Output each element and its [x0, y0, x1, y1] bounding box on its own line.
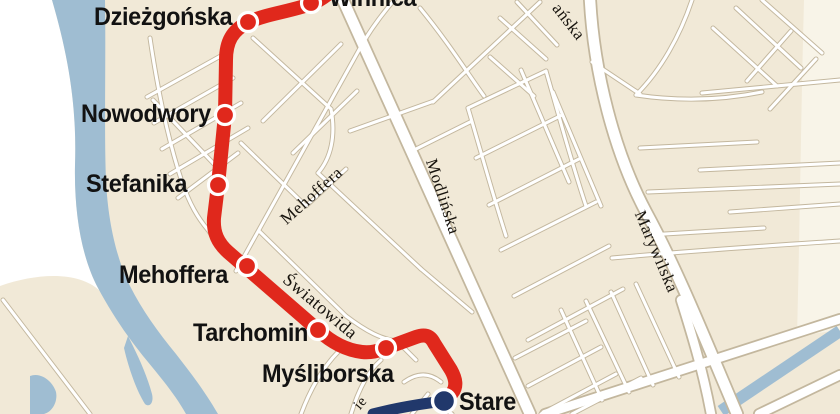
stop-label-tarchomin: Tarchomin	[193, 319, 308, 348]
stop-marker-mehoffera	[238, 257, 257, 276]
stop-marker-stefanika	[209, 176, 228, 195]
stop-label-mysliborska: Myśliborska	[262, 360, 394, 389]
terminus-group	[373, 390, 456, 414]
stop-label-winnica: Winnica	[329, 0, 416, 13]
stop-marker-stare	[433, 390, 456, 413]
stop-label-stefanika: Stefanika	[86, 170, 187, 199]
stop-label-dziezgonska: Dzieżgońska	[94, 3, 232, 32]
river-sliver	[30, 375, 56, 414]
map-canvas: Winnica Dzieżgońska Nowodwory Stefanika …	[0, 0, 840, 414]
map-graphics	[0, 0, 840, 414]
stop-marker-nowodwory	[216, 106, 235, 125]
stop-label-nowodwory: Nowodwory	[81, 100, 211, 129]
stop-marker-dziezgonska	[239, 13, 258, 32]
stop-marker-winnica	[302, 0, 321, 13]
stop-label-stare: Stare	[459, 388, 516, 414]
stop-label-mehoffera: Mehoffera	[119, 261, 228, 290]
stop-marker-mysliborska	[377, 339, 396, 358]
